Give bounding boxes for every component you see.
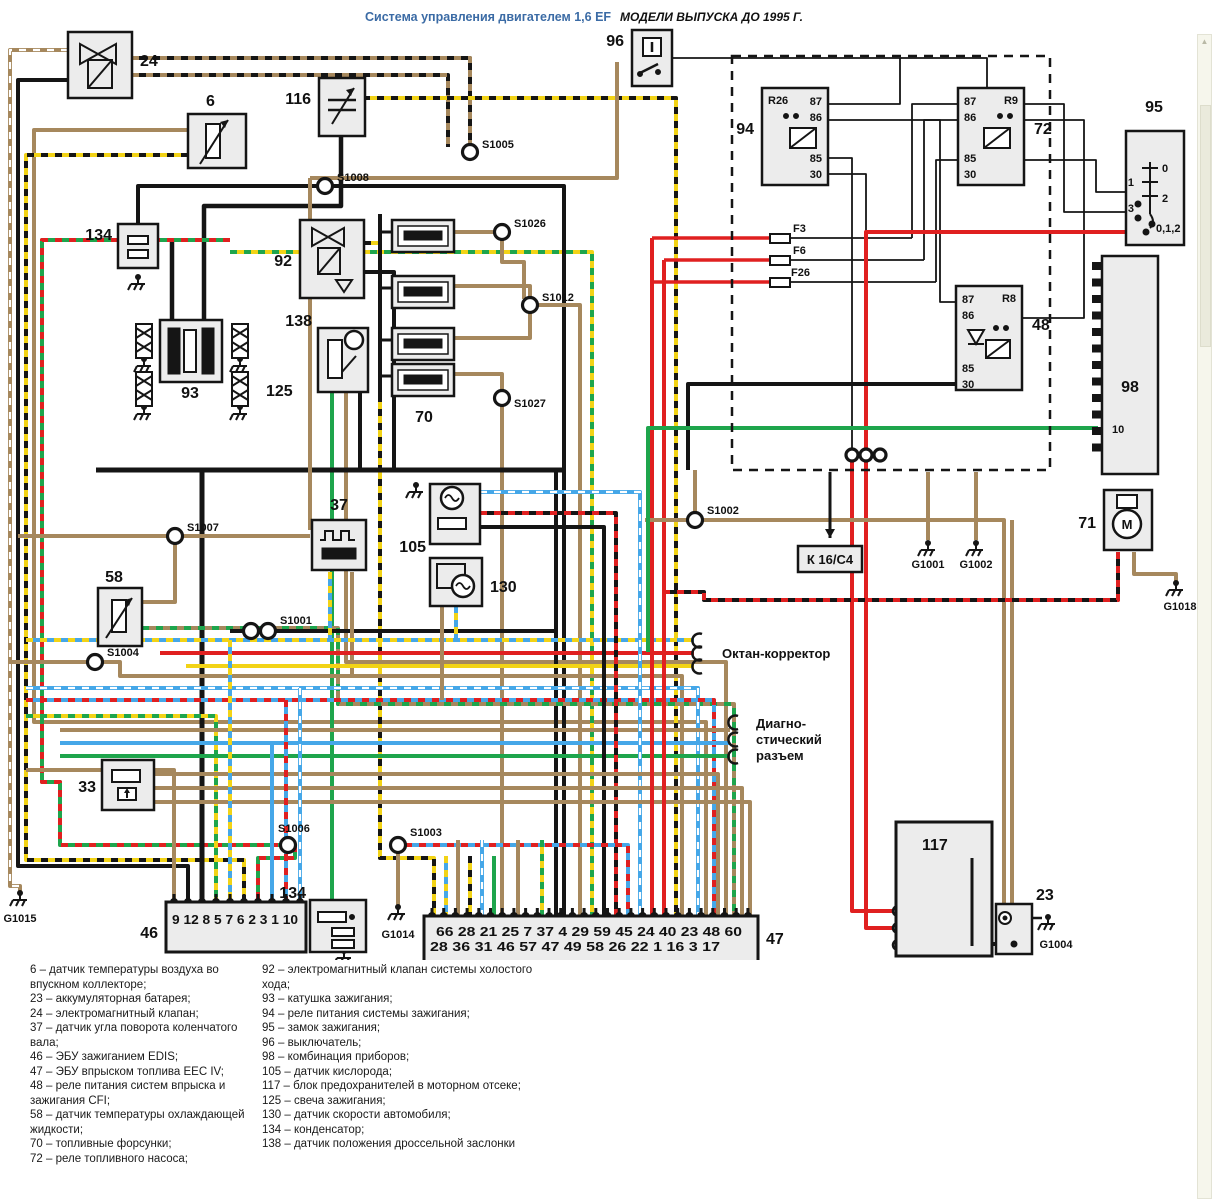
fuse-f26-label: F26 [791, 267, 810, 279]
component-crank-sensor-37: 37 [312, 497, 366, 570]
label-94: 94 [736, 121, 754, 138]
cluster-tooth [1092, 295, 1102, 303]
motor-m-symbol: M [1122, 517, 1133, 532]
relay48-pin86: 86 [962, 310, 974, 322]
wire [672, 58, 987, 88]
lock-mark-0: 0 [1162, 163, 1168, 175]
diag-label-2: стический [756, 732, 822, 747]
wiring-diagram: FEDCBA 24 6 [0, 0, 1217, 960]
legend-item: 130 – датчик скорости автомобиля; [262, 1108, 542, 1123]
wire [502, 240, 524, 299]
label-116: 116 [285, 91, 311, 108]
connector46-pins: 9 12 8 5 7 6 2 3 1 10 [172, 913, 298, 927]
ground-symbol [1166, 580, 1183, 596]
label-46: 46 [140, 925, 158, 942]
relay72-pin87: 87 [964, 96, 976, 108]
component-fuel-pump-71: M 71 [1078, 490, 1152, 550]
relay48-pin85: 85 [962, 363, 974, 375]
svg-text:S1012: S1012 [542, 292, 574, 304]
wire [454, 313, 530, 338]
label-47: 47 [766, 931, 784, 948]
k16c4-label: К 16/С4 [807, 552, 854, 567]
component-injectors-70: 70 [392, 220, 454, 426]
relay94-pin86: 86 [810, 112, 822, 124]
wire [1024, 160, 1126, 192]
component-116: 116 [285, 78, 365, 136]
ground-label-g1004: G1004 [1039, 939, 1073, 951]
diag-label-1: Диагно- [756, 716, 806, 731]
component-ecu-47: 66 28 21 25 7 37 4 29 59 45 24 40 23 48 … [424, 916, 784, 960]
ground-symbol [388, 904, 405, 920]
ground-symbol [966, 540, 983, 556]
cluster-tooth [1092, 312, 1102, 320]
relay72-pin30: 30 [964, 169, 976, 181]
relay72-tag: R9 [1004, 95, 1018, 107]
legend-item: 117 – блок предохранителей в моторном от… [262, 1079, 542, 1094]
label-125: 125 [266, 383, 293, 400]
cluster-tooth [1092, 361, 1102, 369]
svg-text:S1027: S1027 [514, 398, 546, 410]
relay48-pin30: 30 [962, 379, 974, 391]
node-s1007: S1007 [168, 522, 219, 544]
cluster-tooth [1092, 345, 1102, 353]
wire [454, 286, 530, 298]
cluster-tooth [1092, 427, 1102, 435]
lock-combo: 0,1,2 [1156, 223, 1180, 235]
page-subtitle: МОДЕЛИ ВЫПУСКА ДО 1995 Г. [620, 10, 803, 24]
legend-item: 48 – реле питания систем впрыска и зажиг… [30, 1079, 263, 1108]
lock-mark-1: 1 [1128, 177, 1134, 189]
wiring-diagram-page: Система управления двигателем 1,6 EF МОД… [0, 0, 1217, 1199]
label-58: 58 [105, 569, 123, 586]
legend-item: 98 – комбинация приборов; [262, 1050, 542, 1065]
fuse-f6-label: F6 [793, 245, 806, 257]
svg-text:S1004: S1004 [107, 647, 140, 659]
label-96: 96 [606, 33, 624, 50]
component-relay-72: R9 87 86 85 30 72 [958, 88, 1052, 185]
lock-mark-2: 2 [1162, 193, 1168, 205]
label-95: 95 [1145, 99, 1163, 116]
component-fusebox-117: 117 [896, 822, 992, 956]
relay72-pin86: 86 [964, 112, 976, 124]
component-oxygen-sensor-105: 105 [399, 484, 480, 556]
legend-right-column: 92 – электромагнитный клапан системы хол… [262, 963, 542, 1152]
legend-item: 96 – выключатель; [262, 1036, 542, 1051]
legend-item: 134 – конденсатор; [262, 1123, 542, 1138]
svg-text:S1006: S1006 [278, 823, 310, 835]
label-138: 138 [285, 313, 312, 330]
page-title: Система управления двигателем 1,6 EF [365, 10, 611, 24]
label-105: 105 [399, 539, 426, 556]
wire-stripe [132, 75, 448, 147]
vertical-scrollbar[interactable]: ▲ [1197, 34, 1212, 1199]
legend-item: 37 – датчик угла поворота коленчатого ва… [30, 1021, 263, 1050]
legend-item: 125 – свеча зажигания; [262, 1094, 542, 1109]
legend-item: 23 – аккумуляторная батарея; [30, 992, 263, 1007]
octane-label: Октан-корректор [722, 646, 830, 661]
svg-text:S1001: S1001 [280, 615, 312, 627]
legend-item: 58 – датчик температуры охлаждающей жидк… [30, 1108, 263, 1137]
connector47-row1: 66 28 21 25 7 37 4 29 59 45 24 40 23 48 … [436, 925, 742, 939]
wire [1134, 552, 1176, 584]
component-ignition-lock-95: 0 1 2 3 0,1,2 95 [1126, 99, 1184, 245]
ground-symbol [10, 890, 27, 906]
cluster-tooth [1092, 328, 1102, 336]
ground-label-g1014: G1014 [381, 929, 415, 941]
relay72-pin85: 85 [964, 153, 976, 165]
svg-text:S1008: S1008 [337, 172, 369, 184]
wire [537, 305, 580, 916]
ground-label-g1015: G1015 [3, 913, 36, 925]
wire [912, 104, 958, 238]
diagnostic-connector: Диагно- стический разъем [728, 716, 822, 764]
component-air-temp-sensor-6: 6 [188, 93, 246, 168]
label-48: 48 [1032, 317, 1050, 334]
relay48-tag: R8 [1002, 293, 1016, 305]
label-70: 70 [415, 409, 433, 426]
lock-mark-3: 3 [1128, 203, 1134, 215]
ground-label-g1018: G1018 [1163, 601, 1196, 613]
label-117: 117 [922, 837, 948, 854]
component-cluster-98: 98 10 [1102, 256, 1158, 474]
node-s1003: S1003 [391, 827, 442, 853]
svg-text:S1003: S1003 [410, 827, 442, 839]
wire [454, 374, 502, 391]
component-condenser-134-top: 134 [85, 224, 158, 268]
cluster-tooth [1092, 444, 1102, 452]
wire [924, 120, 958, 260]
legend-item: 92 – электромагнитный клапан системы хол… [262, 963, 542, 992]
label-98: 98 [1121, 379, 1139, 396]
cluster-tooth [1092, 279, 1102, 287]
legend-item: 70 – топливные форсунки; [30, 1137, 263, 1152]
wire [828, 158, 852, 449]
cluster-pin-10: 10 [1112, 424, 1124, 436]
wire [132, 75, 448, 147]
svg-text:S1007: S1007 [187, 522, 219, 534]
node-s1004: S1004 [88, 647, 140, 670]
label-130: 130 [490, 579, 517, 596]
cluster-tooth [1092, 378, 1102, 386]
wire [866, 461, 898, 928]
ground-symbol [406, 482, 423, 498]
wire [828, 174, 866, 449]
relay94-pin85: 85 [810, 153, 822, 165]
diag-label-3: разъем [756, 748, 804, 763]
wire [828, 58, 900, 104]
fuses-f3-f6-f26: F3 F6 F26 [770, 223, 810, 287]
wire [664, 552, 1118, 600]
relay48-pin87: 87 [962, 294, 974, 306]
connector47-row2: 28 36 31 46 57 47 49 58 26 22 1 16 3 17 [430, 940, 720, 954]
legend-item: 94 – реле питания системы зажигания; [262, 1007, 542, 1022]
label-6: 6 [206, 93, 215, 110]
node-s1026: S1026 [495, 218, 546, 240]
relay94-tag: R26 [768, 95, 788, 107]
component-ecu-46: 9 12 8 5 7 6 2 3 1 10 46 [140, 902, 306, 952]
cluster-tooth [1092, 394, 1102, 402]
fuse-f3-label: F3 [793, 223, 806, 235]
relay94-pin87: 87 [810, 96, 822, 108]
component-throttle-sensor-138: 138 [285, 313, 368, 392]
legend-item: 72 – реле топливного насоса; [30, 1152, 263, 1167]
label-72: 72 [1034, 121, 1052, 138]
legend-item: 46 – ЭБУ зажиганием EDIS; [30, 1050, 263, 1065]
wire-stripe [664, 552, 1118, 600]
wire [648, 428, 1098, 652]
scrollbar-thumb[interactable] [1200, 105, 1211, 347]
ground-label-g1001: G1001 [911, 559, 944, 571]
legend-item: 24 – электромагнитный клапан; [30, 1007, 263, 1022]
cluster-tooth [1092, 262, 1102, 270]
ground-symbol [918, 540, 935, 556]
svg-text:S1002: S1002 [707, 505, 739, 517]
wire [142, 544, 175, 602]
component-relay-48: R8 87 86 85 30 48 [956, 286, 1050, 391]
label-23: 23 [1036, 887, 1054, 904]
node-s1027: S1027 [495, 391, 546, 411]
component-coolant-sensor-58: 58 [98, 569, 142, 646]
label-134-top: 134 [85, 227, 112, 244]
component-relay-94: R26 87 86 85 30 94 [736, 88, 828, 185]
scrollbar-up-arrow[interactable]: ▲ [1199, 36, 1210, 48]
ground-label-g1002: G1002 [959, 559, 992, 571]
relay94-pin30: 30 [810, 169, 822, 181]
legend-item: 6 – датчик температуры воздуха во впускн… [30, 963, 263, 992]
octane-corrector-connector: Октан-корректор [692, 633, 830, 673]
wires-layer: FEDCBA [10, 50, 1183, 960]
label-24: 24 [140, 53, 158, 70]
ground-symbol [1038, 914, 1055, 930]
component-solenoid-valve-24: 24 [68, 32, 158, 98]
component-idle-valve-92: 92 [274, 220, 364, 298]
wire [852, 461, 898, 911]
label-93: 93 [181, 385, 199, 402]
label-92: 92 [274, 253, 292, 270]
legend-item: 93 – катушка зажигания; [262, 992, 542, 1007]
svg-text:S1026: S1026 [514, 218, 546, 230]
wire [1022, 120, 1084, 318]
legend-left-column: 6 – датчик температуры воздуха во впускн… [30, 963, 263, 1166]
cluster-tooth [1092, 411, 1102, 419]
legend-item: 95 – замок зажигания; [262, 1021, 542, 1036]
component-ignition-coil-93: 93 [160, 320, 222, 402]
ground-symbol [128, 274, 145, 290]
label-71: 71 [1078, 515, 1096, 532]
node-s1006: S1006 [278, 823, 310, 853]
node-relay-bay-1 [846, 449, 858, 461]
svg-text:S1005: S1005 [482, 139, 514, 151]
label-33: 33 [78, 779, 96, 796]
component-33: 33 [78, 760, 154, 810]
label-37: 37 [330, 497, 348, 514]
legend-item: 105 – датчик кислорода; [262, 1065, 542, 1080]
label-134-bottom: 134 [279, 885, 306, 902]
node-relay-bay-2 [860, 449, 872, 461]
legend-item: 138 – датчик положения дроссельной засло… [262, 1137, 542, 1152]
node-relay-bay-3 [874, 449, 886, 461]
legend-item: 47 – ЭБУ впрыском топлива EEC IV; [30, 1065, 263, 1080]
